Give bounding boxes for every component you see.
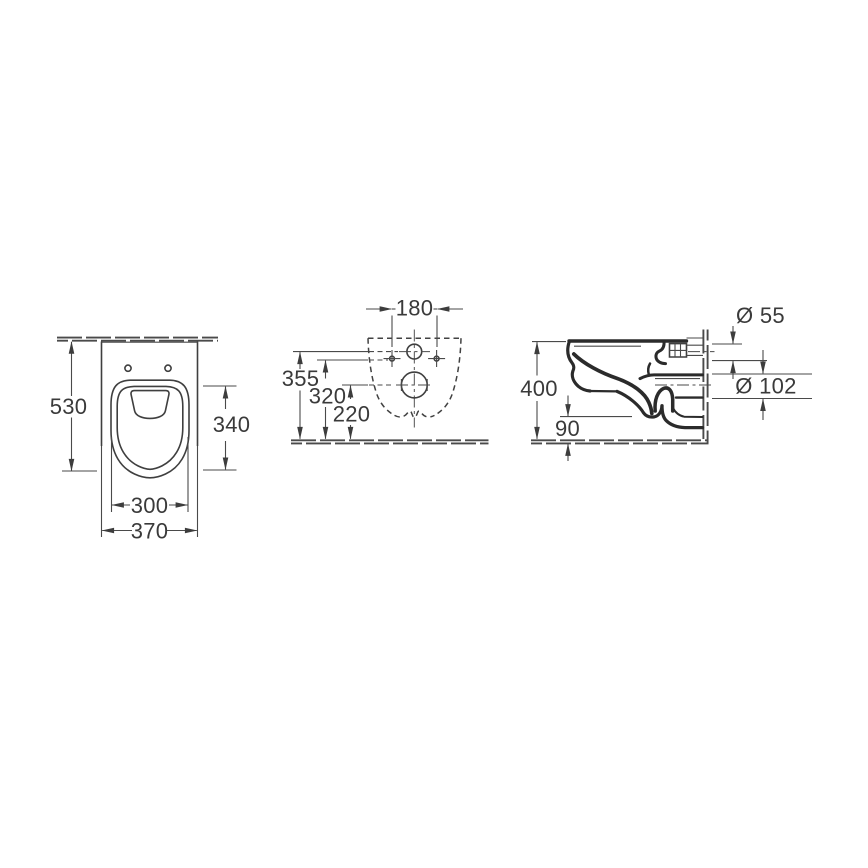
bolt-marker-right xyxy=(428,350,445,367)
dim-label-90: 90 xyxy=(555,416,580,441)
drawing-canvas: 530 340 300 370 xyxy=(0,0,868,868)
dim-bowl-width: 300 xyxy=(112,493,188,518)
toilet-body-front xyxy=(102,342,198,478)
mounting-hole-left xyxy=(125,365,131,371)
dim-label-180: 180 xyxy=(396,296,434,321)
dim-label-outlet-diameter: Ø 102 xyxy=(735,374,796,399)
side-view: 400 90 Ø 55 Ø 102 xyxy=(520,303,812,461)
dim-overall-height: 530 xyxy=(50,342,88,471)
floor-hatch-top-view xyxy=(291,440,489,443)
ports-and-centerlines xyxy=(384,330,446,428)
bowl-outer-rim xyxy=(111,380,189,478)
inlet-spud xyxy=(670,344,704,357)
dim-overall-width: 370 xyxy=(102,519,197,544)
front-view: 530 340 300 370 xyxy=(50,338,251,544)
bowl-inner-rim xyxy=(117,386,183,469)
inner-bowl-curve xyxy=(574,354,652,413)
dim-label-300: 300 xyxy=(131,493,169,518)
top-view: 180 355 320 220 xyxy=(282,296,489,444)
dim-bolt-height: 320 xyxy=(309,360,388,439)
toilet-section-profile xyxy=(568,338,715,428)
dim-label-530: 530 xyxy=(50,394,88,419)
dim-label-370: 370 xyxy=(131,519,169,544)
dim-label-340: 340 xyxy=(213,412,251,437)
dim-underside-clearance: 90 xyxy=(555,396,632,462)
mounting-hole-right xyxy=(165,365,171,371)
dim-bowl-length: 340 xyxy=(213,387,251,470)
water-surface xyxy=(131,391,169,419)
dim-label-220: 220 xyxy=(333,402,371,427)
technical-drawing: 530 340 300 370 xyxy=(0,0,868,868)
wall-hatch-front xyxy=(57,338,218,341)
dim-label-inlet-diameter: Ø 55 xyxy=(736,303,785,328)
dim-label-400: 400 xyxy=(520,376,558,401)
dim-inlet-diameter: Ø 55 xyxy=(712,303,785,379)
trap-weir-curve xyxy=(655,388,673,411)
wall-line-side-view xyxy=(703,330,707,444)
bolt-marker-left xyxy=(384,350,401,367)
